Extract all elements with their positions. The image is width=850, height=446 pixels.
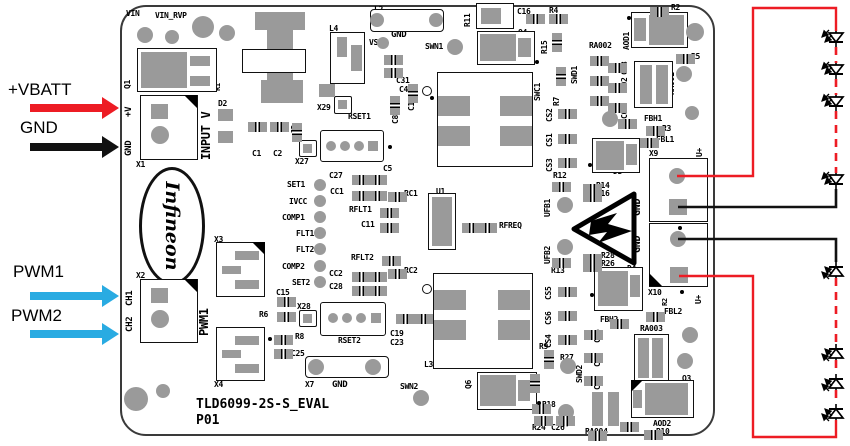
smd-pads xyxy=(676,54,695,64)
component-pad xyxy=(640,65,652,104)
silkscreen-label: C23 xyxy=(390,339,404,347)
via-pad xyxy=(370,13,384,27)
via-pad xyxy=(686,23,704,41)
smd-pads xyxy=(556,67,566,86)
silkscreen-label: GND xyxy=(633,236,643,253)
vbatt-label: +VBATT xyxy=(8,80,71,100)
smd-pads xyxy=(646,126,665,136)
via-pad xyxy=(340,141,350,151)
component-pad xyxy=(267,73,293,80)
pin1-dot xyxy=(268,337,272,341)
pcb-connection-diagram: +VBATT GND PWM1 PWM2 Infineon TLD6099-2S… xyxy=(0,0,850,446)
silkscreen-label: GND xyxy=(633,199,643,216)
silkscreen-label: FLT1 xyxy=(296,230,314,238)
smd-pads xyxy=(556,416,575,426)
silkscreen-label: X27 xyxy=(295,158,309,166)
silkscreen-label: GND xyxy=(391,31,406,40)
silkscreen-label: SWN1 xyxy=(425,43,443,51)
board-revision: P01 xyxy=(196,413,219,428)
smd-pads xyxy=(558,335,577,345)
silkscreen-label: CH2 xyxy=(126,317,135,332)
smd-pads xyxy=(558,134,577,144)
component-pad xyxy=(351,45,362,71)
smd-pads xyxy=(608,103,627,113)
silkscreen-label: COMP2 xyxy=(282,263,305,271)
smd-pads xyxy=(380,223,399,233)
component-pad xyxy=(438,96,470,116)
arrowhead-icon xyxy=(102,323,119,345)
smd-pads xyxy=(270,122,289,132)
led-icon xyxy=(822,172,843,189)
silkscreen-label: D2 xyxy=(218,100,227,108)
smd-pads xyxy=(608,63,627,73)
silkscreen-label: RSET1 xyxy=(348,113,371,121)
smd-pads xyxy=(650,7,669,17)
component-pad xyxy=(222,266,241,274)
corner-mark xyxy=(631,380,643,392)
led-icon xyxy=(822,404,843,421)
via-pad xyxy=(447,39,463,55)
infineon-logo-text: Infineon xyxy=(161,182,183,271)
component-pad xyxy=(434,290,466,310)
smd-pads xyxy=(552,258,571,268)
silkscreen-label: RFLT1 xyxy=(349,206,372,214)
pin1-dot xyxy=(430,96,434,100)
smd-pads xyxy=(588,431,607,441)
silkscreen-label: UFB1 xyxy=(544,199,552,217)
corner-mark xyxy=(184,279,197,292)
smd-pads xyxy=(590,76,609,86)
silkscreen-label: C27 xyxy=(329,172,343,180)
component-pad xyxy=(481,8,501,24)
smd-pads xyxy=(368,191,387,201)
via-pad xyxy=(314,243,326,255)
silkscreen-label: SET2 xyxy=(292,279,310,287)
via-pad xyxy=(670,231,686,247)
silkscreen-label: R15 xyxy=(541,40,549,54)
pin1-dot xyxy=(678,226,682,230)
silkscreen-label: X7 xyxy=(305,381,314,389)
silkscreen-label: CS6 xyxy=(545,311,553,325)
silkscreen-label: SWD2 xyxy=(576,365,584,383)
component-pad xyxy=(190,76,210,86)
silkscreen-label: L3 xyxy=(424,361,433,369)
component-pad xyxy=(261,80,303,103)
component-pad xyxy=(634,18,646,41)
silkscreen-label: GND xyxy=(125,141,134,156)
smd-pads xyxy=(534,416,553,426)
smd-pads xyxy=(618,119,637,129)
silkscreen-label: C28 xyxy=(329,283,343,291)
component-pad xyxy=(218,131,233,143)
component-pad xyxy=(438,126,470,146)
silkscreen-label: SWN2 xyxy=(400,383,418,391)
smd-pads xyxy=(274,335,293,345)
component-pad xyxy=(218,109,233,121)
silkscreen-label: CS1 xyxy=(546,133,554,147)
silkscreen-label: PWM1 xyxy=(198,308,210,336)
component-pad xyxy=(500,96,532,116)
smd-pads xyxy=(590,96,609,106)
led-icon xyxy=(822,374,843,391)
component-outline xyxy=(437,72,533,167)
smd-pads xyxy=(526,14,545,24)
smd-pads xyxy=(396,314,415,324)
via-pad xyxy=(165,30,179,44)
component-pad xyxy=(480,375,516,406)
hole-ring xyxy=(422,284,432,294)
smd-pads xyxy=(608,83,627,93)
silkscreen-label: C11 xyxy=(361,221,375,229)
silkscreen-label: INPUT V xyxy=(200,112,212,160)
silkscreen-label: R7 xyxy=(553,97,561,106)
smd-pads xyxy=(292,123,302,142)
arrowhead-icon xyxy=(102,285,119,307)
led-icon xyxy=(822,30,843,47)
smd-pads xyxy=(382,256,401,266)
silkscreen-label: FBH1 xyxy=(644,115,662,123)
component-pad xyxy=(596,141,624,170)
vbatt-arrow-icon xyxy=(30,104,102,112)
silkscreen-label: VIN xyxy=(126,10,140,18)
smd-pads xyxy=(644,430,663,440)
smd-pads xyxy=(414,314,433,324)
smd-pads xyxy=(277,312,296,322)
smd-pads xyxy=(584,330,603,340)
led-icon xyxy=(822,94,843,111)
silkscreen-label: SWC1 xyxy=(534,83,542,101)
component-pad xyxy=(432,197,452,246)
smd-pads xyxy=(274,349,293,359)
pin1-dot xyxy=(588,163,592,167)
component-pad xyxy=(656,65,668,104)
silkscreen-label: CC2 xyxy=(329,270,343,278)
smd-pads xyxy=(640,138,659,148)
silkscreen-label: C5 xyxy=(383,165,392,173)
via-pad xyxy=(342,313,352,323)
component-pad xyxy=(649,15,684,45)
component-pad xyxy=(652,338,663,378)
corner-mark xyxy=(252,242,265,255)
pwm2-label: PWM2 xyxy=(11,306,62,326)
board-title: TLD6099-2S-S_EVAL xyxy=(196,397,329,412)
silkscreen-label: VIN_RVP xyxy=(155,12,187,20)
component-pad xyxy=(303,144,312,153)
smd-pads xyxy=(549,14,568,24)
silkscreen-label: R6 xyxy=(259,311,268,319)
via-pad xyxy=(314,227,326,239)
smd-pads xyxy=(552,33,562,52)
component-pad xyxy=(255,12,305,30)
via-pad xyxy=(314,260,326,272)
silkscreen-label: UFB2 xyxy=(544,246,552,264)
via-pad xyxy=(124,387,148,411)
silkscreen-label: X1 xyxy=(136,161,145,169)
silkscreen-label: R2 xyxy=(671,4,680,12)
smd-pads xyxy=(584,376,603,386)
pin1-dot xyxy=(627,16,631,20)
component-pad xyxy=(190,56,210,66)
smd-pads xyxy=(530,374,540,393)
component-pad xyxy=(303,314,312,323)
via-pad xyxy=(314,276,326,288)
component-pad xyxy=(518,380,530,401)
silkscreen-label: RFREQ xyxy=(499,222,522,230)
component-pad xyxy=(235,336,259,345)
component-pad xyxy=(338,100,347,109)
silkscreen-label: C15 xyxy=(276,289,290,297)
smd-pads xyxy=(368,175,387,185)
silkscreen-label: GND xyxy=(332,381,347,390)
smd-pads xyxy=(620,422,639,432)
silkscreen-label: U+ xyxy=(696,148,704,157)
component-pad xyxy=(151,104,168,119)
via-pad xyxy=(557,197,573,213)
component-pad xyxy=(267,30,293,49)
via-pad xyxy=(685,106,699,120)
pin1-dot xyxy=(535,60,539,64)
silkscreen-label: X29 xyxy=(317,104,331,112)
pwm1-label: PWM1 xyxy=(13,262,64,282)
silkscreen-label: R8 xyxy=(295,333,304,341)
smd-pads xyxy=(384,55,403,65)
smd-pads xyxy=(384,68,403,78)
component-pad xyxy=(151,288,168,303)
silkscreen-label: C1 xyxy=(252,150,261,158)
silkscreen-label: AOD1 xyxy=(623,32,631,50)
silkscreen-label: RFLT2 xyxy=(351,254,374,262)
via-pad xyxy=(602,111,618,127)
led-icon xyxy=(822,344,843,361)
via-pad xyxy=(137,27,153,43)
smd-pads xyxy=(583,192,602,202)
component-pad xyxy=(498,320,530,340)
silkscreen-label: CC1 xyxy=(330,188,344,196)
component-outline xyxy=(242,49,306,73)
via-pad xyxy=(308,359,324,375)
silkscreen-label: X10 xyxy=(648,289,662,297)
smd-pads xyxy=(380,208,399,218)
component-pad xyxy=(141,52,187,88)
smd-pads xyxy=(388,269,407,279)
silkscreen-label: C25 xyxy=(291,350,305,358)
component-pad xyxy=(337,37,347,57)
arrowhead-icon xyxy=(102,97,119,119)
silkscreen-label: CS2 xyxy=(546,108,554,122)
component-pad xyxy=(598,271,628,306)
component-pad xyxy=(222,350,241,358)
via-pad xyxy=(354,141,364,151)
silkscreen-label: IVCC xyxy=(289,198,307,206)
smd-pads xyxy=(532,404,551,414)
smd-pads xyxy=(584,353,603,363)
smd-pads xyxy=(478,223,497,233)
via-pad xyxy=(314,179,326,191)
via-pad xyxy=(676,66,692,82)
component-pad xyxy=(518,38,531,57)
silkscreen-label: C19 xyxy=(390,330,404,338)
silkscreen-label: CS3 xyxy=(546,158,554,172)
smd-pads xyxy=(558,109,577,119)
via-pad xyxy=(560,358,576,374)
pwm1-arrow-icon xyxy=(30,292,102,300)
smd-pads xyxy=(583,262,602,272)
silkscreen-label: SWD1 xyxy=(571,66,579,84)
smd-pads xyxy=(590,56,609,66)
smd-pads xyxy=(544,350,554,369)
component-pad xyxy=(319,84,335,97)
silkscreen-label: FBL2 xyxy=(664,308,682,316)
silkscreen-label: RSET2 xyxy=(338,337,361,345)
via-pad xyxy=(413,390,429,406)
via-pad xyxy=(314,211,326,223)
pin1-dot xyxy=(537,401,541,405)
silkscreen-label: C2 xyxy=(273,150,282,158)
silkscreen-label: CS5 xyxy=(545,286,553,300)
via-pad xyxy=(377,37,389,49)
smd-pads xyxy=(408,84,418,103)
component-pad xyxy=(235,280,259,289)
component-pad xyxy=(608,392,619,426)
pin1-dot xyxy=(388,145,392,149)
smd-pads xyxy=(646,312,665,322)
smd-pads xyxy=(390,96,400,115)
smd-pads xyxy=(558,287,577,297)
gnd-arrow-icon xyxy=(30,143,102,151)
via-pad xyxy=(669,168,685,184)
component-pad xyxy=(630,275,640,297)
silkscreen-label: X9 xyxy=(649,150,658,158)
silkscreen-label: C8 xyxy=(392,115,400,124)
silkscreen-label: X4 xyxy=(214,381,223,389)
component-pad xyxy=(633,390,642,408)
via-pad xyxy=(192,16,214,38)
silkscreen-label: R13 xyxy=(551,267,565,275)
silkscreen-label: FLT2 xyxy=(296,246,314,254)
via-pad xyxy=(682,327,698,343)
component-pad xyxy=(670,267,688,283)
via-pad xyxy=(677,353,693,369)
corner-mark xyxy=(649,273,662,286)
pin1-dot xyxy=(590,293,594,297)
silkscreen-label: Q6 xyxy=(465,380,473,389)
component-pad xyxy=(371,313,381,323)
silkscreen-label: CH1 xyxy=(126,291,135,306)
gnd-label: GND xyxy=(20,118,58,138)
component-pad xyxy=(669,199,687,215)
silkscreen-label: RA002 xyxy=(589,42,612,50)
silkscreen-label: +V xyxy=(125,107,134,117)
component-pad xyxy=(434,320,466,340)
smd-pads xyxy=(388,192,407,202)
silkscreen-label: Q1 xyxy=(124,80,132,89)
led-icon xyxy=(822,262,843,279)
silkscreen-label: RA003 xyxy=(640,325,663,333)
silkscreen-label: C4 xyxy=(399,86,408,94)
component-pad xyxy=(498,290,530,310)
via-pad xyxy=(328,313,338,323)
smd-pads xyxy=(368,272,387,282)
pwm2-arrow-icon xyxy=(30,330,102,338)
smd-pads xyxy=(558,158,577,168)
silkscreen-label: R2 xyxy=(662,298,669,306)
corner-mark xyxy=(184,95,197,108)
via-pad xyxy=(356,313,366,323)
component-pad xyxy=(500,126,532,146)
via-pad xyxy=(151,310,169,328)
via-pad xyxy=(156,384,170,398)
smd-pads xyxy=(248,122,267,132)
silkscreen-label: R12 xyxy=(553,172,567,180)
component-pad xyxy=(638,338,649,378)
silkscreen-label: R11 xyxy=(464,13,472,27)
led-icon xyxy=(822,62,843,79)
via-pad xyxy=(557,239,573,255)
pin1-dot xyxy=(680,290,684,294)
smd-pads xyxy=(277,297,296,307)
component-pad xyxy=(480,34,516,61)
component-pad xyxy=(626,144,637,165)
via-pad xyxy=(429,13,443,27)
component-pad xyxy=(368,141,378,151)
via-pad xyxy=(151,126,169,144)
component-pad xyxy=(645,383,688,415)
component-pad xyxy=(235,364,259,373)
component-pad xyxy=(592,392,603,426)
silkscreen-label: U+ xyxy=(695,295,703,304)
via-pad xyxy=(314,195,326,207)
infineon-logo: Infineon xyxy=(139,167,205,285)
smd-pads xyxy=(558,311,577,321)
hole-ring xyxy=(422,86,432,96)
via-pad xyxy=(365,359,381,375)
smd-pads xyxy=(368,286,387,296)
smd-pads xyxy=(610,319,629,329)
via-pad xyxy=(219,25,235,41)
silkscreen-label: COMP1 xyxy=(282,214,305,222)
smd-pads xyxy=(552,182,571,192)
silkscreen-label: SET1 xyxy=(287,181,305,189)
via-pad xyxy=(326,141,336,151)
arrowhead-icon xyxy=(102,136,119,158)
